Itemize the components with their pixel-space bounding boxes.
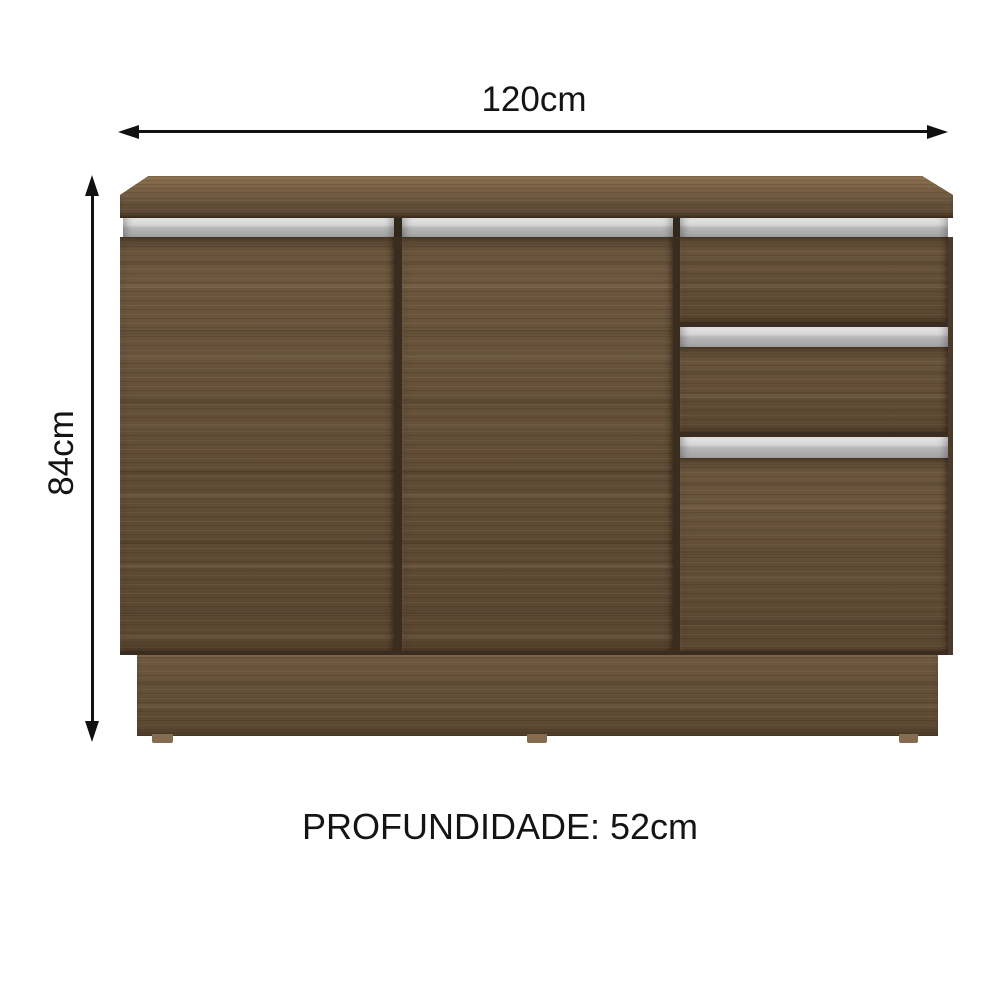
- cabinet-foot-middle: [527, 734, 547, 743]
- cabinet-top-surface: [120, 176, 953, 195]
- cabinet-side-panel: [948, 237, 953, 655]
- drawer-column: [680, 237, 948, 655]
- cabinet-foot-left: [152, 734, 173, 743]
- width-dimension-arrow: [126, 130, 938, 133]
- handle-strip-drawer-3: [680, 437, 948, 459]
- height-dimension-label: 84cm: [42, 410, 82, 496]
- arrow-down-icon: [85, 721, 99, 742]
- cabinet-door-left: [120, 237, 394, 651]
- drawer-1-face: [680, 237, 948, 322]
- drawer-2-face: [680, 347, 948, 432]
- arrow-up-icon: [85, 175, 99, 196]
- handle-strip-row: [123, 218, 948, 237]
- cabinet-foot-right: [899, 734, 918, 743]
- handle-strip-middle-door: [402, 218, 673, 238]
- cabinet-plinth: [137, 655, 938, 736]
- handle-strip-top-drawer: [680, 218, 948, 238]
- handle-strip-left-door: [123, 218, 394, 238]
- cabinet-door-middle: [402, 237, 673, 651]
- dimension-diagram: 120cm 84cm PROFUNDIDADE: 52cm: [0, 0, 1000, 1000]
- depth-dimension-label: PROFUNDIDADE: 52cm: [0, 806, 1000, 848]
- cabinet-body: [120, 237, 953, 655]
- arrow-left-icon: [118, 125, 139, 139]
- width-dimension-label: 120cm: [120, 80, 948, 120]
- cabinet-top-panel: [120, 195, 953, 218]
- handle-strip-drawer-2: [680, 327, 948, 348]
- height-dimension-arrow: [91, 186, 94, 730]
- arrow-right-icon: [927, 125, 948, 139]
- drawer-3-face: [680, 458, 948, 651]
